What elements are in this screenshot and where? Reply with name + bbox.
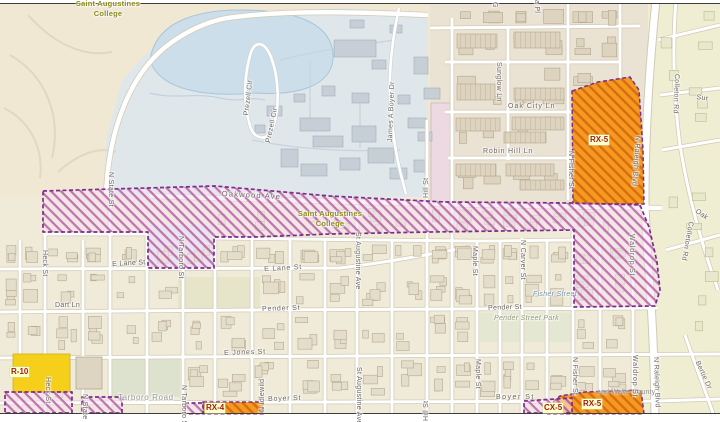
college-label-mid: Saint Augustines College [294, 209, 366, 229]
street-label-n-tarboro-st-2: N Tarboro St [179, 385, 187, 422]
street-label-maple-st-2: Maple St [473, 359, 481, 389]
street-label-tarboro-road: Tarboro Road [118, 394, 174, 402]
ncod-strip-c [185, 403, 203, 414]
street-label-n-idlewild: N Idlewild [259, 379, 267, 412]
street-label-n-fisher-st-2: N Fisher St [570, 357, 578, 395]
large-building [76, 357, 102, 389]
open-block [178, 277, 260, 308]
street-label-st-augustine-ave-1: St Augustine Ave [353, 232, 361, 290]
street-label-dart-ln: Dart Ln [55, 302, 80, 310]
street-label-heck-st-2: Heck St [43, 377, 51, 404]
place-label-fisher-street: Fisher Street [533, 291, 577, 299]
zone-label-cx5: CX-5 [543, 403, 563, 413]
college-label-line2: College [60, 9, 156, 19]
ncod-strip-b [82, 397, 122, 413]
street-label-hill-st-2: Hill St [423, 401, 431, 421]
street-label-n-state-st-1: N State St [106, 172, 114, 207]
college-label-line1: Saint Augustines [60, 0, 156, 9]
street-label-sur-partial: Sur [696, 94, 709, 104]
street-label-heck-st-1: Heck St [40, 250, 48, 277]
zone-label-rx4: RX-4 [205, 403, 225, 413]
street-label-waldrop-st-1: Waldrop St [627, 234, 635, 276]
street-label-robin-hill-ln: Robin Hill Ln [483, 148, 533, 156]
street-label-waldrop-st-2: Waldrop St [630, 355, 638, 397]
ncod-strip-a [5, 392, 72, 413]
street-label-pl-partial: a Pl [532, 0, 540, 13]
zone-label-rx5-north: RX-5 [589, 135, 609, 145]
street-label-n-fisher-st-1: N Fisher St [566, 151, 574, 189]
zone-label-rx5-south: RX-5 [582, 399, 602, 409]
college-label-north: Saint Augustines College [60, 0, 156, 19]
street-label-pender-st-w: Pender St [262, 305, 301, 314]
street-label-n-state-st-2: N State St [80, 394, 88, 422]
place-label-pender-street-park: Pender Street Park [494, 315, 559, 323]
street-label-pender-st-e: Pender St [488, 304, 522, 313]
street-label-e-jones-st: E Jones St [224, 349, 266, 358]
street-label-n-carver-st: N Carver St [518, 240, 526, 280]
college-label-line2: College [294, 219, 366, 229]
street-label-boyer-st-w: Boyer St [268, 395, 302, 404]
attribution-text: and Wake County [597, 389, 655, 397]
street-label-sunglow-ln: Sunglow Ln [494, 62, 502, 102]
street-label-n-tarboro-st-1: N Tarboro St [176, 236, 184, 279]
street-label-n-raleigh-blvd-2: N Raleigh Blvd [651, 357, 661, 408]
pond-shape [150, 10, 333, 94]
zone-label-r10: R-10 [10, 367, 29, 377]
street-label-hill-st-1: Hill St [423, 178, 431, 198]
college-label-line1: Saint Augustines [294, 209, 366, 219]
street-label-maple-st-1: Maple St [470, 246, 478, 276]
street-label-st-augustine-ave-2: St Augustine Ave [354, 367, 362, 422]
street-label-boyer-st-e: Boyer St [496, 394, 535, 402]
street-label-colleton-rd-1: Colleton Rd [671, 74, 680, 114]
street-label-g-partial: G [490, 2, 498, 8]
map-viewport[interactable]: Saint Augustines College Saint Augustine… [0, 0, 720, 422]
pink-parcel [431, 103, 451, 204]
street-label-oak-city-ln: Oak City Ln [508, 103, 556, 111]
